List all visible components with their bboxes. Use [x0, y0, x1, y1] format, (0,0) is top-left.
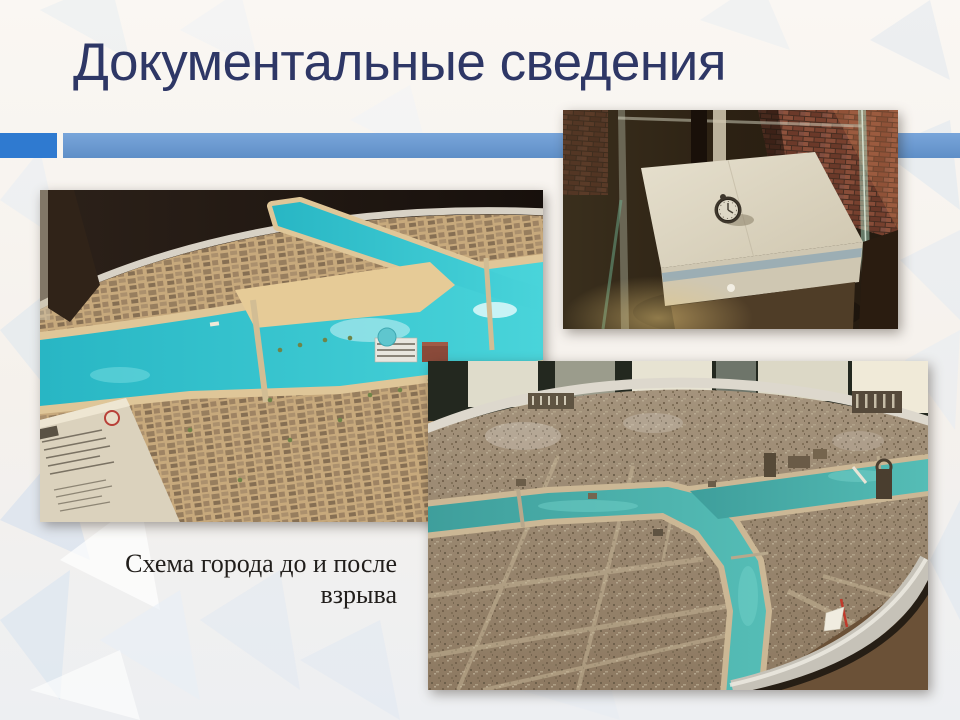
accent-bar-left-segment — [0, 133, 57, 158]
slide: Документальные сведения — [0, 0, 960, 720]
photo-city-model-after — [428, 361, 928, 690]
photo-stopped-watch — [563, 110, 898, 329]
slide-title: Документальные сведения — [73, 34, 726, 92]
caption-line-1: Схема города до и после — [97, 549, 397, 580]
photo-caption: Схема города до и после взрыва — [97, 549, 397, 610]
caption-line-2: взрыва — [97, 580, 397, 611]
